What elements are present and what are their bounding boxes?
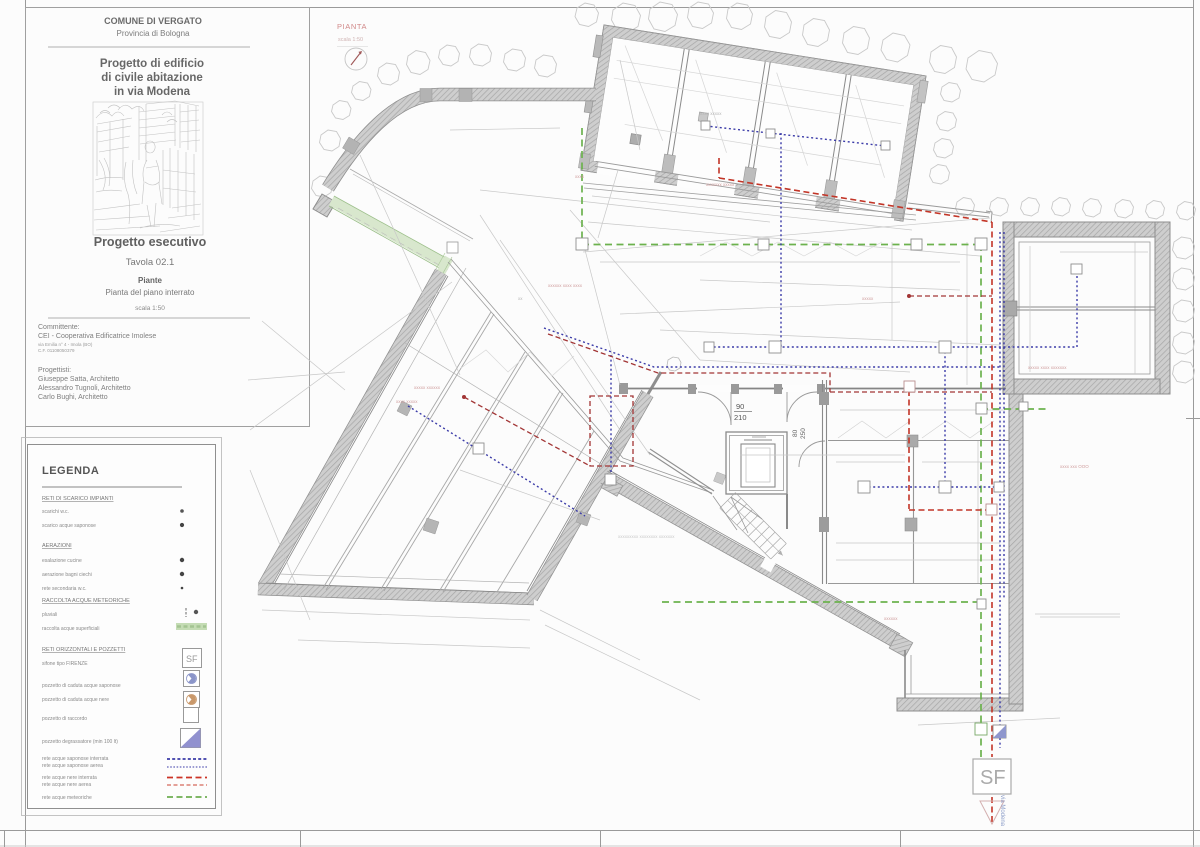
svg-text:Carlo Bughi, Architetto: Carlo Bughi, Architetto — [38, 394, 108, 401]
svg-text:LEGENDA: LEGENDA — [42, 465, 99, 477]
svg-text:pozzetto di caduta acque nere: pozzetto di caduta acque nere — [42, 697, 109, 703]
svg-text:xxxx xxx OOO: xxxx xxx OOO — [1060, 464, 1089, 469]
svg-text:AERAZIONI: AERAZIONI — [42, 543, 72, 549]
svg-text:di civile abitazione: di civile abitazione — [101, 72, 203, 84]
svg-text:rete acque nere interrata: rete acque nere interrata — [42, 775, 97, 781]
svg-text:scala 1:50: scala 1:50 — [135, 305, 165, 312]
svg-text:SF: SF — [186, 654, 198, 664]
svg-text:raccolta acque superficiali: raccolta acque superficiali — [42, 626, 100, 632]
svg-text:Progetto esecutivo: Progetto esecutivo — [94, 235, 207, 249]
svg-text:80: 80 — [792, 429, 799, 437]
svg-text:xxxxxxxxx xxxxxxxx xxxxxxx: xxxxxxxxx xxxxxxxx xxxxxxx — [618, 534, 675, 539]
svg-text:in via Modena: in via Modena — [114, 86, 191, 98]
svg-text:pluviali: pluviali — [42, 612, 57, 618]
svg-text:xxxxx xxxxxx: xxxxx xxxxxx — [414, 385, 441, 390]
svg-text:Tavola 02.1: Tavola 02.1 — [126, 257, 175, 268]
svg-text:scarico acque saponose: scarico acque saponose — [42, 523, 96, 529]
svg-text:esalazione cucine: esalazione cucine — [42, 558, 82, 564]
svg-text:RETI DI SCARICO IMPIANTI: RETI DI SCARICO IMPIANTI — [42, 496, 114, 502]
svg-text:Provincia di Bologna: Provincia di Bologna — [117, 29, 190, 38]
svg-text:pozzetto degrassatore (min 100: pozzetto degrassatore (min 100 lt) — [42, 739, 118, 745]
svg-text:RACCOLTA ACQUE METEORICHE: RACCOLTA ACQUE METEORICHE — [42, 598, 130, 604]
svg-text:xx: xx — [518, 296, 523, 301]
svg-text:90: 90 — [736, 402, 744, 411]
svg-text:rete acque saponose aerea: rete acque saponose aerea — [42, 763, 103, 769]
svg-text:xxxxxx xxxx xxxx: xxxxxx xxxx xxxx — [548, 283, 583, 288]
svg-text:rete acque saponose interrata: rete acque saponose interrata — [42, 756, 109, 762]
svg-text:Committente:: Committente: — [38, 324, 80, 331]
svg-text:Progetto di edificio: Progetto di edificio — [100, 58, 204, 70]
svg-text:sifone tipo FIRENZE: sifone tipo FIRENZE — [42, 661, 88, 667]
svg-text:xxxxxx: xxxxxx — [884, 616, 898, 621]
svg-text:pozzetto di caduta acque sapon: pozzetto di caduta acque saponose — [42, 683, 121, 689]
svg-text:via Modena: via Modena — [999, 795, 1005, 827]
svg-text:Pianta del piano interrato: Pianta del piano interrato — [106, 288, 196, 297]
svg-text:rete secondaria w.c.: rete secondaria w.c. — [42, 586, 86, 592]
svg-text:xxxx: xxxx — [575, 174, 585, 179]
svg-text:PIANTA: PIANTA — [337, 22, 367, 31]
svg-text:xxxxxxx xxxxx: xxxxxxx xxxxx — [706, 182, 735, 187]
svg-text:Alessandro Tugnoli, Architetto: Alessandro Tugnoli, Architetto — [38, 385, 131, 392]
svg-text:Progettisti:: Progettisti: — [38, 367, 71, 374]
svg-text:pozzetto di raccordo: pozzetto di raccordo — [42, 716, 87, 722]
svg-text:xxxxx: xxxxx — [862, 296, 874, 301]
svg-text:aerazione bagni ciechi: aerazione bagni ciechi — [42, 572, 92, 578]
svg-text:CEI - Cooperativa Edificatrice: CEI - Cooperativa Edificatrice Imolese — [38, 333, 156, 340]
svg-text:scala 1:50: scala 1:50 — [338, 37, 363, 43]
svg-text:210: 210 — [734, 413, 747, 422]
svg-text:COMUNE DI VERGATO: COMUNE DI VERGATO — [104, 16, 202, 26]
svg-text:Giuseppe Satta, Architetto: Giuseppe Satta, Architetto — [38, 376, 119, 383]
svg-text:rete acque nere aerea: rete acque nere aerea — [42, 782, 91, 788]
svg-text:250: 250 — [800, 428, 807, 439]
svg-text:xxxx xxxxx: xxxx xxxxx — [700, 111, 722, 116]
svg-text:xxxx xxxxx: xxxx xxxxx — [396, 399, 418, 404]
svg-text:C.F. 01108050379: C.F. 01108050379 — [38, 348, 75, 353]
svg-text:xxxxx xxxx xxxxxxx: xxxxx xxxx xxxxxxx — [1028, 365, 1067, 370]
svg-text:Piante: Piante — [138, 276, 163, 285]
svg-text:rete acque meteoriche: rete acque meteoriche — [42, 795, 92, 801]
svg-text:SF: SF — [980, 767, 1006, 789]
svg-text:scarichi w.c.: scarichi w.c. — [42, 509, 69, 515]
svg-text:via Emilia n° 4 - Imola (BO): via Emilia n° 4 - Imola (BO) — [38, 342, 93, 347]
svg-text:RETI ORIZZONTALI E POZZETTI: RETI ORIZZONTALI E POZZETTI — [42, 647, 126, 653]
